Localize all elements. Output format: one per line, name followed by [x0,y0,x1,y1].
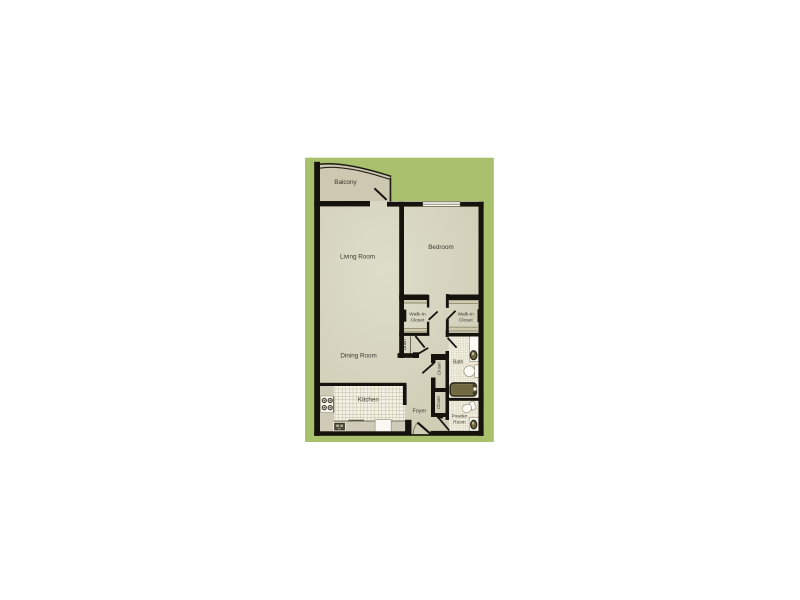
svg-text:Walk-In: Walk-In [458,311,475,317]
svg-text:Foyer: Foyer [413,409,427,415]
svg-text:Kitchen: Kitchen [358,397,380,404]
svg-text:Closet: Closet [436,395,441,409]
svg-text:Bedroom: Bedroom [428,244,454,251]
svg-text:Closet: Closet [411,318,426,324]
svg-text:Powder: Powder [452,413,468,418]
svg-text:Dining Room: Dining Room [340,353,376,360]
svg-text:Closet: Closet [437,361,442,375]
svg-text:Linen: Linen [402,339,407,351]
svg-text:Balcony: Balcony [334,179,357,186]
svg-text:Living Room: Living Room [340,253,375,260]
svg-text:Room: Room [453,419,465,424]
svg-text:Walk-In: Walk-In [409,311,426,317]
svg-text:Bath: Bath [453,359,464,365]
svg-text:Closet: Closet [459,318,474,324]
